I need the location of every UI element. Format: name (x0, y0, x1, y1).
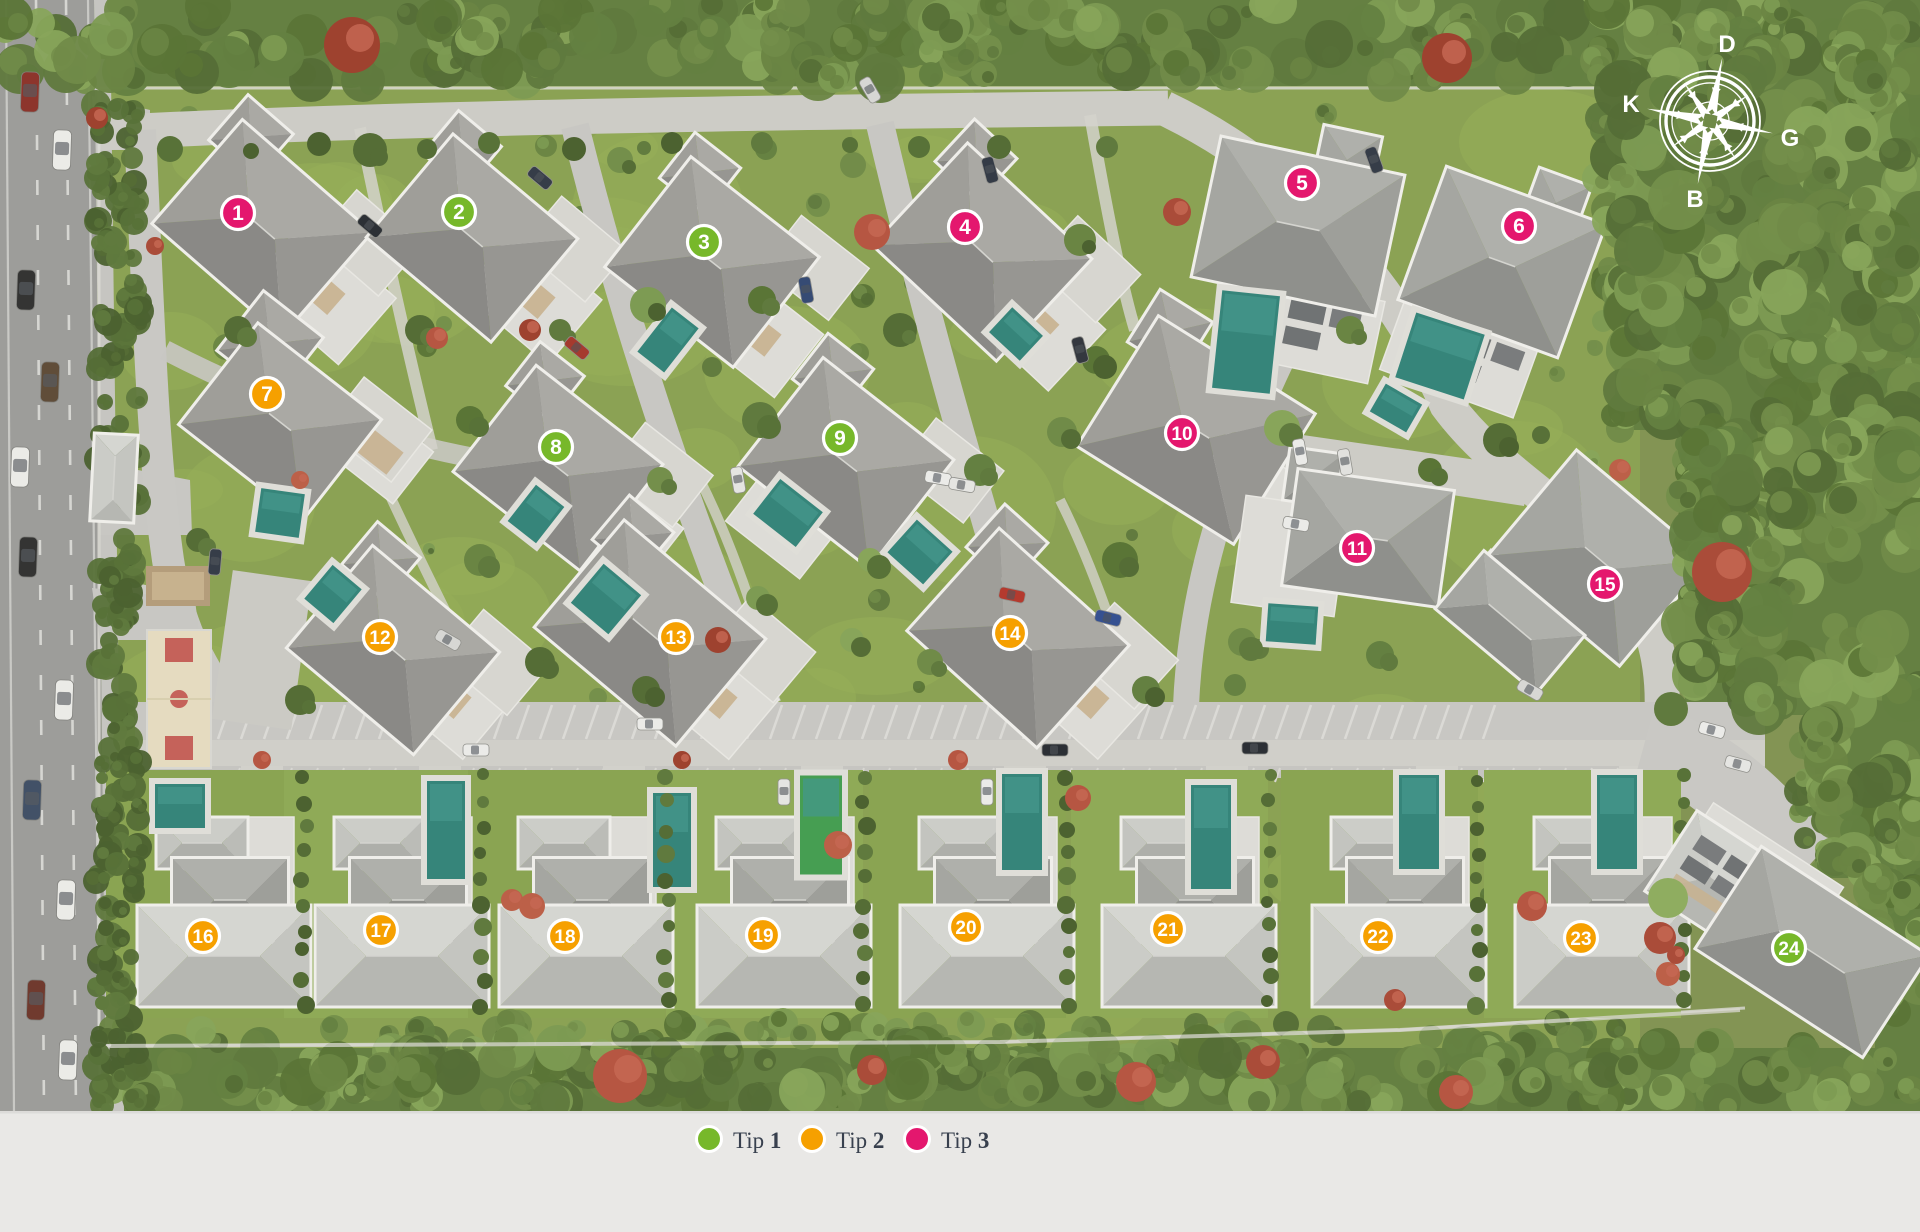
svg-text:8: 8 (550, 436, 562, 459)
svg-text:Tip 1: Tip 1 (733, 1128, 781, 1153)
svg-text:20: 20 (955, 918, 976, 939)
svg-text:5: 5 (1296, 172, 1308, 195)
svg-text:1: 1 (232, 202, 244, 225)
svg-text:21: 21 (1157, 920, 1179, 941)
svg-text:10: 10 (1171, 424, 1192, 445)
svg-text:23: 23 (1570, 929, 1591, 950)
svg-text:2: 2 (453, 201, 465, 224)
svg-text:13: 13 (665, 628, 686, 649)
svg-text:Tip 3: Tip 3 (941, 1128, 989, 1153)
svg-text:Tip 2: Tip 2 (836, 1128, 884, 1153)
svg-text:3: 3 (698, 231, 710, 254)
svg-text:18: 18 (554, 927, 575, 948)
svg-text:7: 7 (261, 383, 273, 406)
svg-text:24: 24 (1778, 939, 1800, 960)
svg-text:D: D (1718, 31, 1735, 58)
svg-text:4: 4 (959, 216, 971, 239)
svg-text:17: 17 (370, 921, 391, 942)
svg-text:B: B (1686, 186, 1703, 213)
svg-text:9: 9 (834, 427, 846, 450)
svg-text:6: 6 (1513, 215, 1525, 238)
svg-text:22: 22 (1367, 927, 1388, 948)
svg-text:16: 16 (192, 927, 213, 948)
svg-text:15: 15 (1594, 575, 1616, 596)
svg-text:11: 11 (1347, 539, 1368, 560)
svg-text:K: K (1622, 91, 1640, 118)
svg-text:19: 19 (752, 926, 773, 947)
svg-text:G: G (1781, 125, 1800, 152)
svg-text:12: 12 (369, 628, 390, 649)
svg-text:14: 14 (999, 624, 1021, 645)
